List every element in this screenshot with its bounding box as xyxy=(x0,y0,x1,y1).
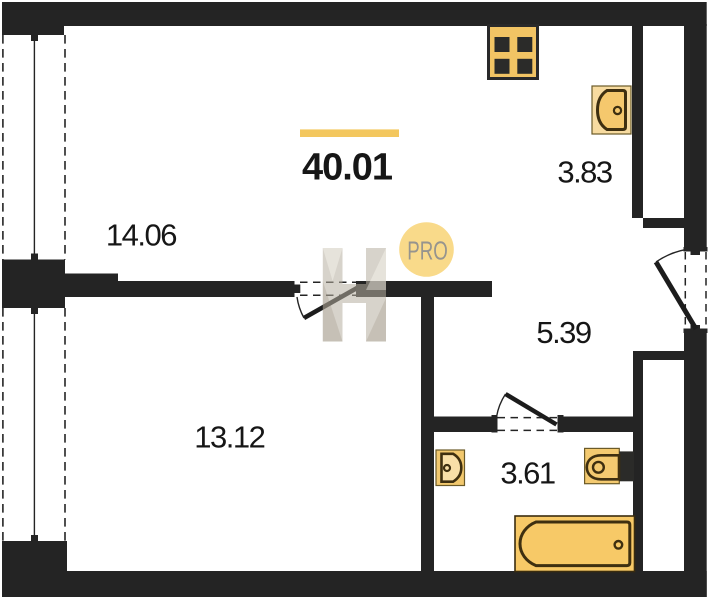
svg-text:3.83: 3.83 xyxy=(557,154,612,189)
svg-text:PRO: PRO xyxy=(407,235,448,265)
svg-text:40.01: 40.01 xyxy=(302,147,393,189)
svg-text:14.06: 14.06 xyxy=(106,218,176,253)
svg-text:13.12: 13.12 xyxy=(194,420,264,455)
svg-text:5.39: 5.39 xyxy=(536,315,591,350)
svg-text:3.61: 3.61 xyxy=(500,456,555,491)
